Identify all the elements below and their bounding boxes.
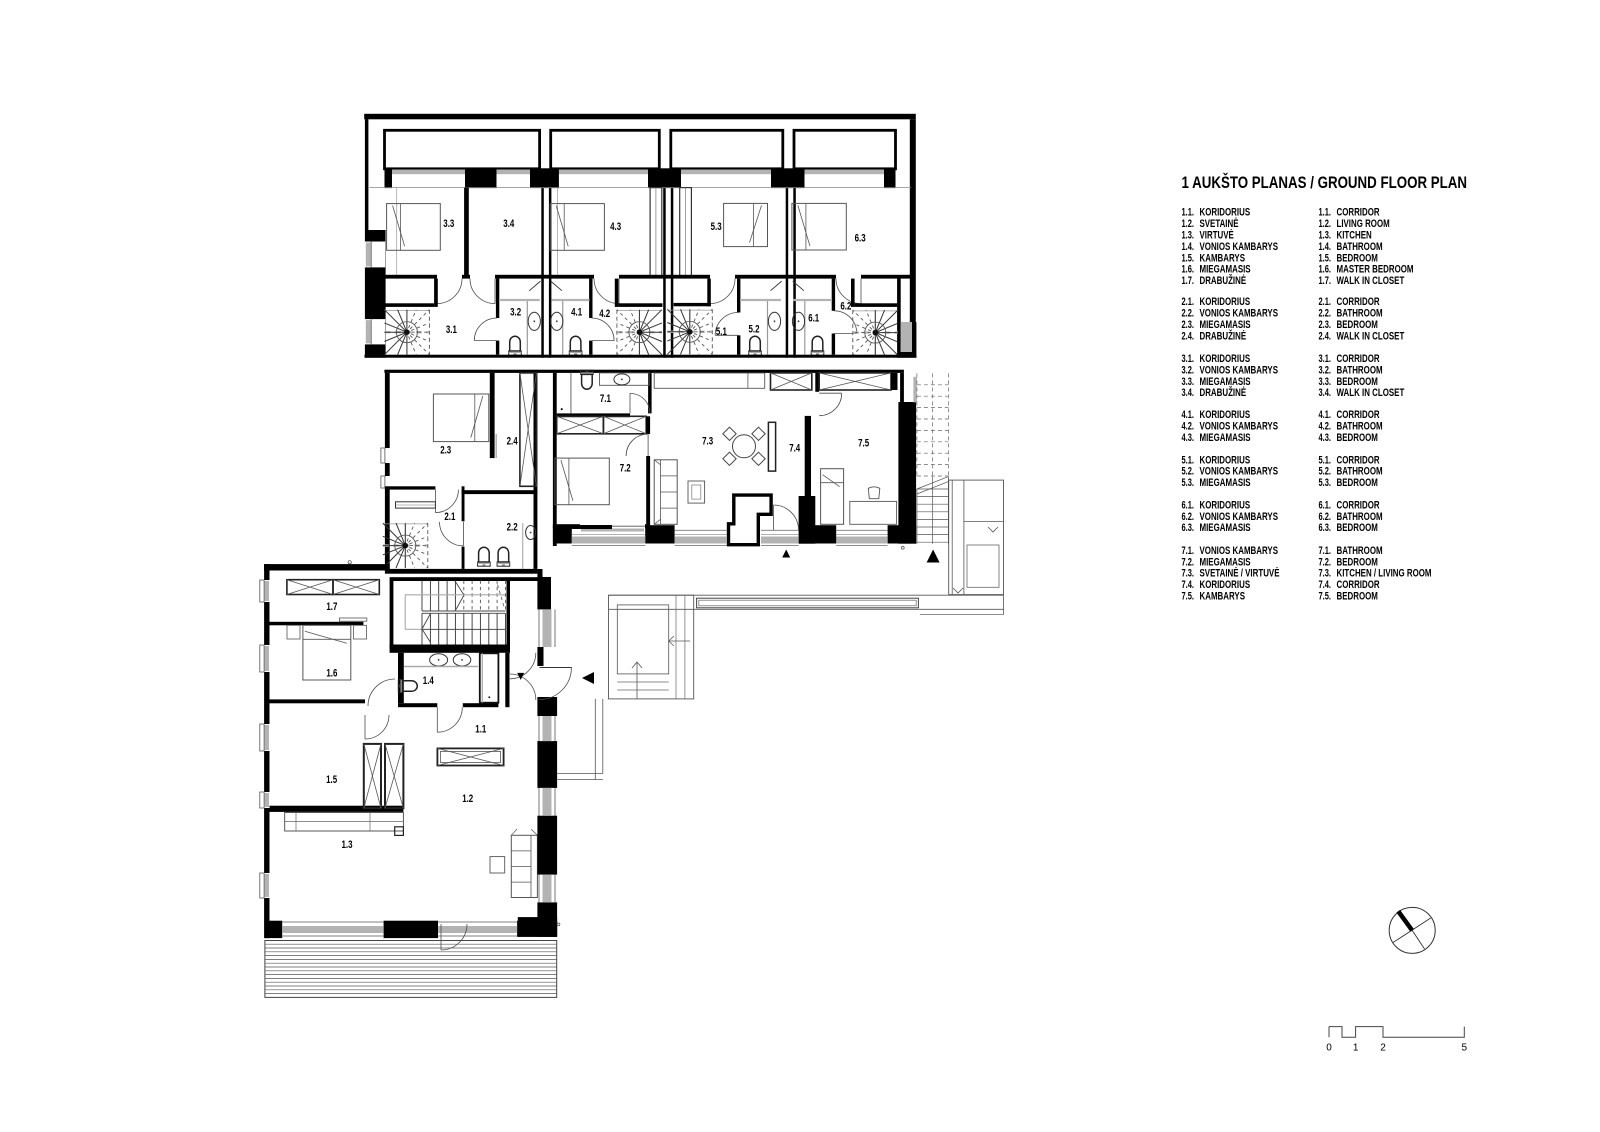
svg-text:6.3.: 6.3. bbox=[1319, 522, 1332, 534]
svg-text:5.2: 5.2 bbox=[749, 324, 760, 336]
svg-text:1.2: 1.2 bbox=[462, 793, 473, 805]
svg-text:7.2.: 7.2. bbox=[1182, 556, 1195, 568]
svg-text:1.5.: 1.5. bbox=[1182, 252, 1195, 264]
svg-text:6.1.: 6.1. bbox=[1182, 499, 1195, 511]
svg-text:2.3.: 2.3. bbox=[1319, 319, 1332, 331]
svg-text:MIEGAMASIS: MIEGAMASIS bbox=[1200, 376, 1251, 388]
svg-text:KORIDORIUS: KORIDORIUS bbox=[1200, 207, 1251, 219]
svg-text:1.7.: 1.7. bbox=[1182, 275, 1195, 287]
svg-text:5.1.: 5.1. bbox=[1182, 454, 1195, 466]
svg-text:KORIDORIUS: KORIDORIUS bbox=[1200, 353, 1251, 365]
svg-text:3.4: 3.4 bbox=[503, 218, 515, 230]
svg-text:3.1: 3.1 bbox=[446, 324, 457, 336]
svg-text:MIEGAMASIS: MIEGAMASIS bbox=[1200, 522, 1251, 534]
svg-text:1: 1 bbox=[1353, 1043, 1359, 1054]
svg-text:7.3.: 7.3. bbox=[1182, 568, 1195, 580]
svg-text:1.4.: 1.4. bbox=[1182, 241, 1195, 253]
svg-text:MIEGAMASIS: MIEGAMASIS bbox=[1200, 319, 1251, 331]
svg-text:4.1.: 4.1. bbox=[1319, 409, 1332, 421]
svg-text:BEDROOM: BEDROOM bbox=[1337, 432, 1378, 444]
svg-text:2.3.: 2.3. bbox=[1182, 319, 1195, 331]
svg-text:1.2.: 1.2. bbox=[1319, 218, 1332, 230]
svg-text:1 AUKŠTO PLANAS / GROUND FLOOR: 1 AUKŠTO PLANAS / GROUND FLOOR PLAN bbox=[1182, 173, 1468, 192]
svg-text:KAMBARYS: KAMBARYS bbox=[1200, 252, 1246, 264]
svg-text:CORRIDOR: CORRIDOR bbox=[1337, 353, 1380, 365]
svg-text:WALK IN CLOSET: WALK IN CLOSET bbox=[1337, 387, 1405, 399]
svg-text:SVETAINĖ: SVETAINĖ bbox=[1200, 217, 1239, 230]
svg-text:CORRIDOR: CORRIDOR bbox=[1337, 499, 1380, 511]
svg-text:2.2.: 2.2. bbox=[1182, 308, 1195, 320]
svg-text:KITCHEN: KITCHEN bbox=[1337, 230, 1372, 242]
svg-text:6.2: 6.2 bbox=[840, 300, 851, 312]
svg-text:1.6.: 1.6. bbox=[1319, 264, 1332, 276]
svg-text:3.4.: 3.4. bbox=[1319, 387, 1332, 399]
svg-text:BATHROOM: BATHROOM bbox=[1337, 241, 1383, 253]
svg-text:KORIDORIUS: KORIDORIUS bbox=[1200, 296, 1251, 308]
svg-text:3.4.: 3.4. bbox=[1182, 387, 1195, 399]
svg-text:7.2: 7.2 bbox=[620, 462, 631, 474]
svg-text:WALK IN CLOSET: WALK IN CLOSET bbox=[1337, 330, 1405, 342]
svg-text:VONIOS KAMBARYS: VONIOS KAMBARYS bbox=[1200, 511, 1279, 523]
svg-text:7.4: 7.4 bbox=[789, 443, 801, 455]
svg-text:1.3.: 1.3. bbox=[1182, 230, 1195, 242]
svg-text:MIEGAMASIS: MIEGAMASIS bbox=[1200, 477, 1251, 489]
svg-text:7.3: 7.3 bbox=[702, 435, 713, 447]
svg-text:VONIOS KAMBARYS: VONIOS KAMBARYS bbox=[1200, 308, 1279, 320]
svg-text:BEDROOM: BEDROOM bbox=[1337, 319, 1378, 331]
svg-text:CORRIDOR: CORRIDOR bbox=[1337, 454, 1380, 466]
svg-text:2.4: 2.4 bbox=[507, 436, 519, 448]
svg-text:DRABUŽINĖ: DRABUŽINĖ bbox=[1200, 386, 1247, 399]
svg-text:5.1: 5.1 bbox=[716, 326, 727, 338]
svg-text:6.3: 6.3 bbox=[855, 233, 866, 245]
svg-text:7.5.: 7.5. bbox=[1182, 591, 1195, 603]
svg-text:6.3.: 6.3. bbox=[1182, 522, 1195, 534]
svg-text:KORIDORIUS: KORIDORIUS bbox=[1200, 579, 1251, 591]
svg-text:5.3.: 5.3. bbox=[1182, 477, 1195, 489]
svg-text:1.1.: 1.1. bbox=[1319, 207, 1332, 219]
svg-text:4.2: 4.2 bbox=[599, 308, 610, 320]
svg-text:BATHROOM: BATHROOM bbox=[1337, 545, 1383, 557]
svg-text:BEDROOM: BEDROOM bbox=[1337, 477, 1378, 489]
svg-text:2.1: 2.1 bbox=[444, 511, 455, 523]
svg-text:7.4.: 7.4. bbox=[1182, 579, 1195, 591]
svg-text:VONIOS KAMBARYS: VONIOS KAMBARYS bbox=[1200, 466, 1279, 478]
svg-text:4.2.: 4.2. bbox=[1182, 421, 1195, 433]
svg-text:VONIOS KAMBARYS: VONIOS KAMBARYS bbox=[1200, 364, 1279, 376]
svg-text:2: 2 bbox=[1380, 1043, 1386, 1054]
svg-text:7.2.: 7.2. bbox=[1319, 556, 1332, 568]
svg-text:2.3: 2.3 bbox=[440, 444, 451, 456]
svg-text:DRABUŽINĖ: DRABUŽINĖ bbox=[1200, 274, 1247, 287]
svg-text:7.1: 7.1 bbox=[600, 393, 611, 405]
svg-text:DRABUŽINĖ: DRABUŽINĖ bbox=[1200, 329, 1247, 342]
svg-text:BEDROOM: BEDROOM bbox=[1337, 376, 1378, 388]
svg-text:3.3.: 3.3. bbox=[1182, 376, 1195, 388]
svg-text:MASTER BEDROOM: MASTER BEDROOM bbox=[1337, 264, 1414, 276]
svg-text:MIEGAMASIS: MIEGAMASIS bbox=[1200, 556, 1251, 568]
svg-text:VIRTUVĖ: VIRTUVĖ bbox=[1200, 229, 1234, 242]
svg-text:2.2: 2.2 bbox=[507, 522, 518, 534]
svg-text:1.4: 1.4 bbox=[423, 675, 435, 687]
svg-text:BEDROOM: BEDROOM bbox=[1337, 252, 1378, 264]
svg-text:1.5.: 1.5. bbox=[1319, 252, 1332, 264]
svg-text:KORIDORIUS: KORIDORIUS bbox=[1200, 454, 1251, 466]
svg-text:VONIOS KAMBARYS: VONIOS KAMBARYS bbox=[1200, 545, 1279, 557]
svg-text:5.3.: 5.3. bbox=[1319, 477, 1332, 489]
svg-text:VONIOS KAMBARYS: VONIOS KAMBARYS bbox=[1200, 241, 1279, 253]
svg-text:7.3.: 7.3. bbox=[1319, 568, 1332, 580]
svg-text:1.7.: 1.7. bbox=[1319, 275, 1332, 287]
svg-text:1.5: 1.5 bbox=[326, 774, 337, 786]
svg-text:4.1.: 4.1. bbox=[1182, 409, 1195, 421]
svg-text:3.1.: 3.1. bbox=[1319, 353, 1332, 365]
svg-text:BEDROOM: BEDROOM bbox=[1337, 556, 1378, 568]
svg-text:MIEGAMASIS: MIEGAMASIS bbox=[1200, 432, 1251, 444]
svg-text:5.2.: 5.2. bbox=[1319, 466, 1332, 478]
svg-text:4.3: 4.3 bbox=[610, 221, 621, 233]
svg-text:7.5: 7.5 bbox=[858, 438, 869, 450]
svg-text:2.4.: 2.4. bbox=[1182, 330, 1195, 342]
svg-text:WALK IN CLOSET: WALK IN CLOSET bbox=[1337, 275, 1405, 287]
svg-text:1.3: 1.3 bbox=[342, 839, 353, 851]
svg-text:6.2.: 6.2. bbox=[1319, 511, 1332, 523]
svg-text:3.2: 3.2 bbox=[510, 306, 521, 318]
svg-text:7.5.: 7.5. bbox=[1319, 591, 1332, 603]
svg-text:3.1.: 3.1. bbox=[1182, 353, 1195, 365]
svg-text:CORRIDOR: CORRIDOR bbox=[1337, 579, 1380, 591]
svg-text:2.1.: 2.1. bbox=[1319, 296, 1332, 308]
svg-text:MIEGAMASIS: MIEGAMASIS bbox=[1200, 264, 1251, 276]
svg-text:0: 0 bbox=[1326, 1043, 1332, 1054]
svg-text:KORIDORIUS: KORIDORIUS bbox=[1200, 409, 1251, 421]
svg-text:5.3: 5.3 bbox=[711, 221, 722, 233]
svg-text:3.2.: 3.2. bbox=[1319, 364, 1332, 376]
svg-text:1.6.: 1.6. bbox=[1182, 264, 1195, 276]
svg-text:1.1.: 1.1. bbox=[1182, 207, 1195, 219]
svg-text:BATHROOM: BATHROOM bbox=[1337, 364, 1383, 376]
svg-text:2.1.: 2.1. bbox=[1182, 296, 1195, 308]
svg-text:BATHROOM: BATHROOM bbox=[1337, 511, 1383, 523]
svg-text:4.3.: 4.3. bbox=[1182, 432, 1195, 444]
svg-text:1.4.: 1.4. bbox=[1319, 241, 1332, 253]
svg-text:7.4.: 7.4. bbox=[1319, 579, 1332, 591]
svg-text:1.3.: 1.3. bbox=[1319, 230, 1332, 242]
svg-text:VONIOS KAMBARYS: VONIOS KAMBARYS bbox=[1200, 421, 1279, 433]
svg-text:5.1.: 5.1. bbox=[1319, 454, 1332, 466]
svg-text:2.4.: 2.4. bbox=[1319, 330, 1332, 342]
svg-text:1.1: 1.1 bbox=[475, 724, 486, 736]
svg-text:KITCHEN / LIVING ROOM: KITCHEN / LIVING ROOM bbox=[1337, 568, 1432, 580]
svg-text:BATHROOM: BATHROOM bbox=[1337, 308, 1383, 320]
svg-text:5.2.: 5.2. bbox=[1182, 466, 1195, 478]
svg-text:1.2.: 1.2. bbox=[1182, 218, 1195, 230]
svg-text:BEDROOM: BEDROOM bbox=[1337, 591, 1378, 603]
svg-text:3.3.: 3.3. bbox=[1319, 376, 1332, 388]
svg-text:4.1: 4.1 bbox=[571, 306, 582, 318]
svg-text:CORRIDOR: CORRIDOR bbox=[1337, 207, 1380, 219]
svg-text:1.7: 1.7 bbox=[326, 601, 337, 613]
svg-text:CORRIDOR: CORRIDOR bbox=[1337, 296, 1380, 308]
svg-text:2.2.: 2.2. bbox=[1319, 308, 1332, 320]
svg-text:BEDROOM: BEDROOM bbox=[1337, 522, 1378, 534]
svg-text:7.1.: 7.1. bbox=[1319, 545, 1332, 557]
svg-text:6.2.: 6.2. bbox=[1182, 511, 1195, 523]
svg-text:CORRIDOR: CORRIDOR bbox=[1337, 409, 1380, 421]
svg-text:3.2.: 3.2. bbox=[1182, 364, 1195, 376]
svg-text:BATHROOM: BATHROOM bbox=[1337, 421, 1383, 433]
svg-text:3.3: 3.3 bbox=[443, 218, 454, 230]
svg-text:1.6: 1.6 bbox=[326, 668, 337, 680]
svg-text:6.1.: 6.1. bbox=[1319, 499, 1332, 511]
svg-text:LIVING ROOM: LIVING ROOM bbox=[1337, 218, 1390, 230]
svg-text:KAMBARYS: KAMBARYS bbox=[1200, 591, 1246, 603]
svg-text:BATHROOM: BATHROOM bbox=[1337, 466, 1383, 478]
svg-text:4.2.: 4.2. bbox=[1319, 421, 1332, 433]
svg-text:7.1.: 7.1. bbox=[1182, 545, 1195, 557]
svg-text:6.1: 6.1 bbox=[808, 312, 819, 324]
svg-text:5: 5 bbox=[1462, 1043, 1468, 1054]
svg-text:4.3.: 4.3. bbox=[1319, 432, 1332, 444]
svg-text:KORIDORIUS: KORIDORIUS bbox=[1200, 499, 1251, 511]
svg-text:SVETAINĖ / VIRTUVĖ: SVETAINĖ / VIRTUVĖ bbox=[1200, 567, 1280, 580]
